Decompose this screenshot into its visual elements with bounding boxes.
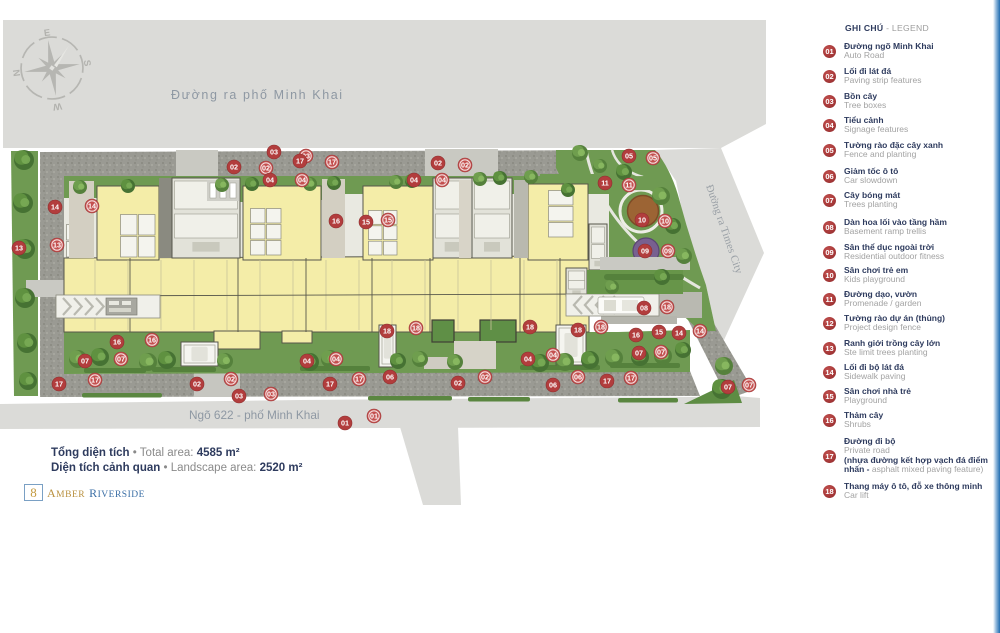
svg-text:09: 09 [641,247,649,256]
svg-text:02: 02 [454,379,462,388]
svg-text:17: 17 [627,374,635,383]
svg-text:06: 06 [386,373,394,382]
svg-text:06: 06 [549,381,557,390]
svg-text:04: 04 [303,357,311,366]
svg-text:18: 18 [526,323,534,332]
svg-text:02: 02 [481,373,489,382]
svg-text:14: 14 [696,327,704,336]
svg-text:18: 18 [663,303,671,312]
svg-text:11: 11 [601,179,609,188]
svg-text:03: 03 [235,392,243,401]
svg-text:02: 02 [461,161,469,170]
svg-text:W: W [52,100,62,112]
svg-text:18: 18 [597,323,605,332]
svg-text:Đường ra phố Minh Khai: Đường ra phố Minh Khai [171,88,344,102]
svg-text:07: 07 [657,348,665,357]
svg-text:17: 17 [328,158,336,167]
svg-text:09: 09 [664,247,672,256]
svg-text:15: 15 [362,218,370,227]
svg-text:02: 02 [230,163,238,172]
svg-text:02: 02 [262,164,270,173]
svg-text:04: 04 [524,355,532,364]
svg-text:07: 07 [724,383,732,392]
svg-text:10: 10 [638,216,646,225]
svg-text:01: 01 [370,412,378,421]
svg-text:10: 10 [661,217,669,226]
svg-text:14: 14 [88,202,96,211]
svg-text:16: 16 [148,336,156,345]
svg-text:04: 04 [549,351,557,360]
svg-text:04: 04 [266,176,274,185]
svg-text:16: 16 [113,338,121,347]
svg-text:04: 04 [298,176,306,185]
svg-text:15: 15 [655,328,663,337]
svg-text:17: 17 [55,380,63,389]
svg-text:18: 18 [412,324,420,333]
svg-text:16: 16 [332,217,340,226]
svg-text:03: 03 [267,390,275,399]
svg-text:17: 17 [355,375,363,384]
svg-text:02: 02 [227,375,235,384]
svg-text:18: 18 [383,327,391,336]
svg-text:04: 04 [410,176,418,185]
svg-text:17: 17 [326,380,334,389]
svg-text:18: 18 [574,326,582,335]
svg-text:05: 05 [649,154,657,163]
svg-text:05: 05 [625,152,633,161]
svg-text:17: 17 [603,377,611,386]
svg-text:04: 04 [438,176,446,185]
svg-text:07: 07 [117,355,125,364]
svg-text:17: 17 [91,376,99,385]
svg-text:02: 02 [193,380,201,389]
svg-text:16: 16 [632,331,640,340]
svg-text:15: 15 [384,216,392,225]
svg-text:03: 03 [270,148,278,157]
svg-text:07: 07 [745,381,753,390]
svg-text:11: 11 [625,181,633,190]
svg-text:08: 08 [640,304,648,313]
svg-text:07: 07 [81,357,89,366]
svg-text:02: 02 [434,159,442,168]
svg-text:13: 13 [53,241,61,250]
svg-text:06: 06 [574,373,582,382]
svg-text:04: 04 [332,355,340,364]
svg-text:07: 07 [635,349,643,358]
svg-text:14: 14 [51,203,59,212]
svg-text:13: 13 [15,244,23,253]
svg-text:14: 14 [675,329,683,338]
svg-text:01: 01 [341,419,349,428]
svg-text:Ngõ 622 - phố Minh Khai: Ngõ 622 - phố Minh Khai [189,408,320,422]
svg-text:17: 17 [296,157,304,166]
